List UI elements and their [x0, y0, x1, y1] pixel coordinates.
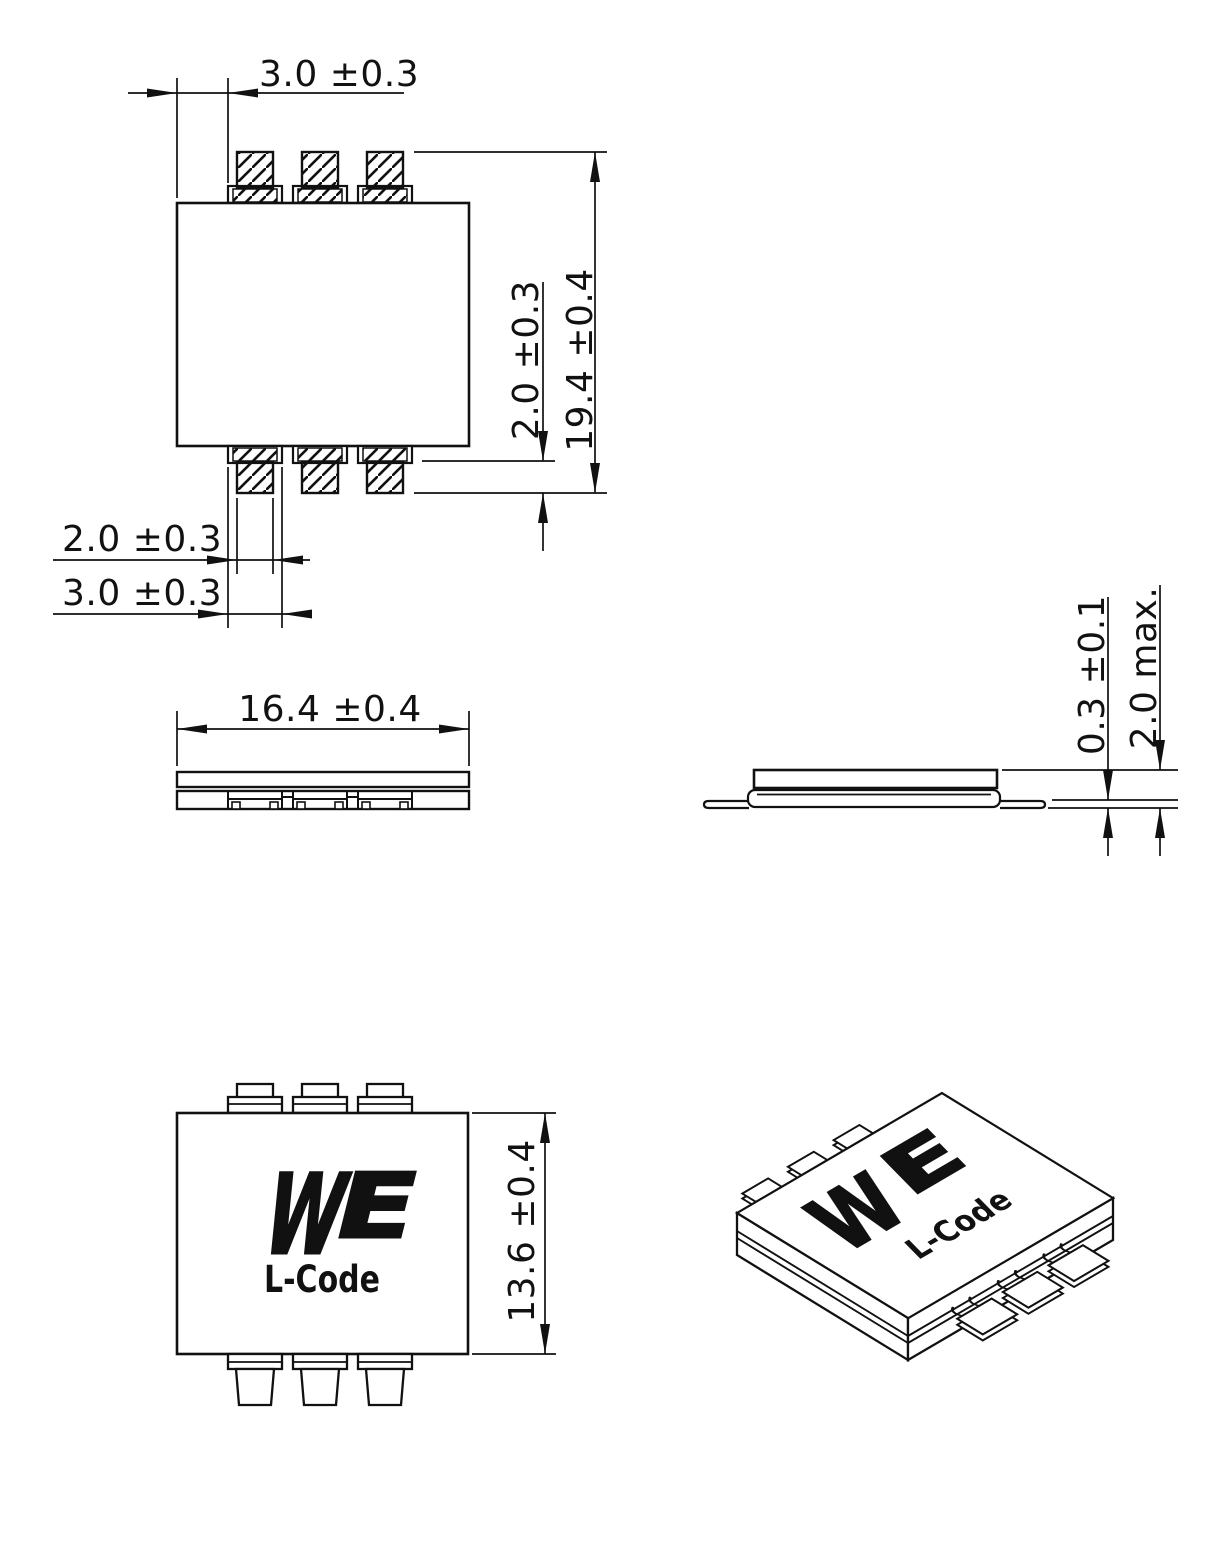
isometric-view: W E L-Code	[737, 1093, 1113, 1360]
marking-text: L-Code	[264, 1258, 380, 1301]
dim-lead-base-width-label: 3.0 ±0.3	[62, 573, 222, 614]
front-view: 16.4 ±0.4	[177, 689, 469, 809]
top-view-body	[177, 203, 469, 446]
dim-body-depth-label: 13.6 ±0.4	[502, 1139, 543, 1323]
dim-lead-width-label: 2.0 ±0.3	[62, 519, 222, 560]
profile-base-plate	[748, 790, 1000, 807]
profile-view: 0.3 ±0.1 2.0 max.	[704, 585, 1178, 856]
dim-overall-length-label: 19.4 ±0.4	[560, 268, 601, 452]
front-view-base-plate	[177, 791, 469, 809]
dim-lead-protrusion-label: 2.0 ±0.3	[506, 280, 547, 440]
top-view: 3.0 ±0.3 19.4 ±0.4 2.0 ±0.3 2.0 ±0.	[53, 54, 607, 628]
top-view-bottom-leads	[228, 446, 412, 493]
dim-lead-offset-label: 3.0 ±0.3	[259, 54, 419, 95]
drawing-page: 3.0 ±0.3 19.4 ±0.4 2.0 ±0.3 2.0 ±0.	[0, 0, 1229, 1558]
top-view-top-leads	[228, 152, 412, 203]
front-view-top-plate	[177, 772, 469, 787]
profile-body	[754, 770, 997, 788]
dim-max-height-label: 2.0 max.	[1124, 587, 1165, 750]
dim-standoff-label: 0.3 ±0.1	[1072, 595, 1113, 755]
bottom-view-top-leads	[228, 1084, 412, 1113]
bottom-view-bottom-leads	[228, 1354, 412, 1405]
dimension-drawing: 3.0 ±0.3 19.4 ±0.4 2.0 ±0.3 2.0 ±0.	[0, 0, 1229, 1558]
bottom-view: W E L-Code 13.6 ±0.4	[177, 1084, 556, 1405]
dim-body-width-label: 16.4 ±0.4	[238, 689, 422, 730]
